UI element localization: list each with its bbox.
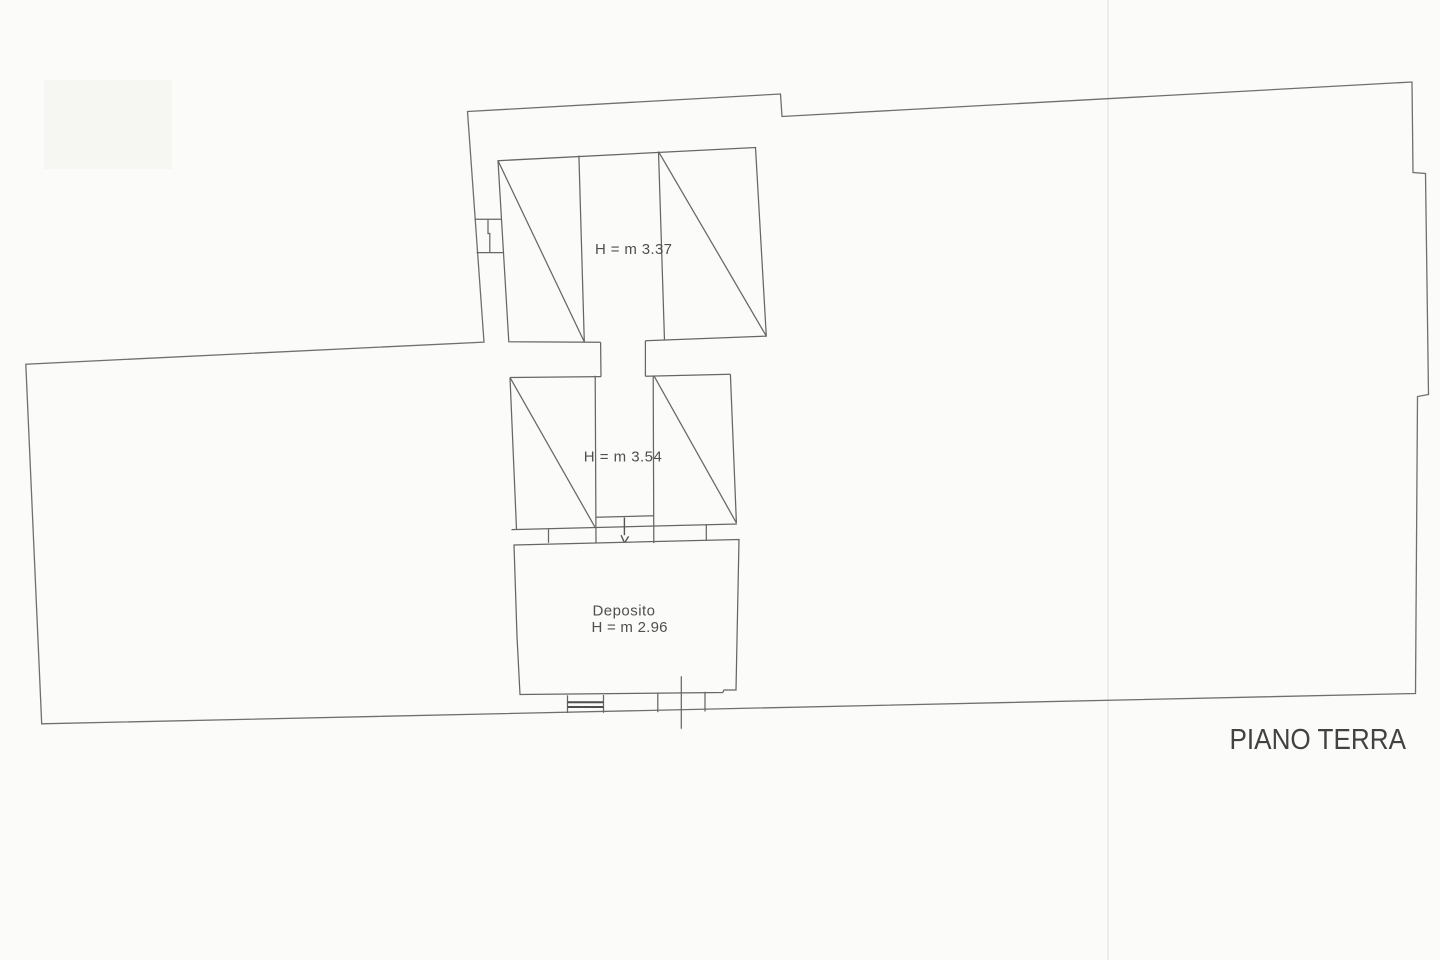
svg-text:Deposito: Deposito (593, 603, 656, 620)
svg-text:H = m 2.96: H = m 2.96 (592, 619, 668, 636)
svg-text:PIANO TERRA: PIANO TERRA (1230, 724, 1407, 756)
svg-text:H = m 3.37: H = m 3.37 (595, 241, 672, 258)
svg-text:H = m 3.54: H = m 3.54 (584, 449, 662, 466)
